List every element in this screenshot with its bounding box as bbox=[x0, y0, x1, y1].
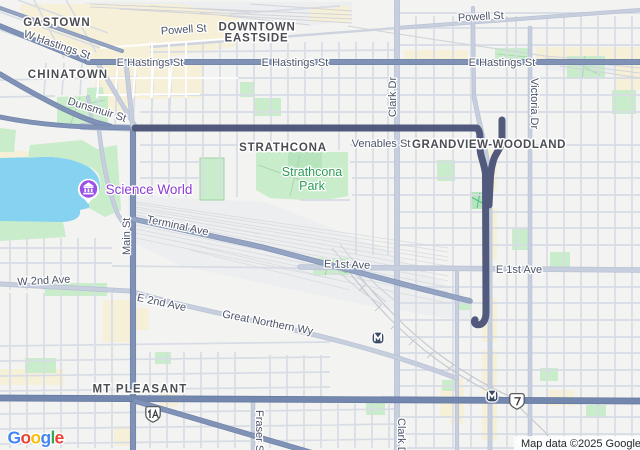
svg-text:STRATHCONA: STRATHCONA bbox=[239, 142, 327, 154]
svg-text:GASTOWN: GASTOWN bbox=[23, 17, 91, 29]
svg-text:Park: Park bbox=[299, 179, 325, 193]
svg-text:Map data ©2025 Google: Map data ©2025 Google bbox=[521, 438, 640, 450]
svg-text:EASTSIDE: EASTSIDE bbox=[225, 33, 289, 45]
svg-text:Clark Dr: Clark Dr bbox=[387, 77, 399, 118]
svg-text:Science World: Science World bbox=[106, 182, 193, 197]
svg-text:Fraser St: Fraser St bbox=[253, 410, 265, 450]
svg-text:CHINATOWN: CHINATOWN bbox=[28, 69, 108, 81]
svg-text:E 1st Ave: E 1st Ave bbox=[324, 258, 371, 272]
svg-text:E Hastings St: E Hastings St bbox=[469, 57, 536, 69]
svg-text:E Hastings St: E Hastings St bbox=[262, 57, 329, 69]
svg-text:Powell St: Powell St bbox=[458, 10, 504, 24]
svg-text:Main St: Main St bbox=[121, 218, 133, 255]
svg-text:MT PLEASANT: MT PLEASANT bbox=[93, 384, 188, 396]
svg-text:GRANDVIEW-WOODLAND: GRANDVIEW-WOODLAND bbox=[412, 139, 566, 151]
svg-text:Victoria Dr: Victoria Dr bbox=[528, 78, 540, 129]
svg-text:G: G bbox=[8, 428, 22, 448]
svg-text:E Hastings St: E Hastings St bbox=[117, 57, 184, 69]
svg-text:E 1st Ave: E 1st Ave bbox=[496, 264, 542, 276]
svg-text:Venables St: Venables St bbox=[352, 138, 411, 150]
svg-text:Clark D: Clark D bbox=[395, 418, 407, 450]
svg-text:Strathcona: Strathcona bbox=[282, 165, 343, 179]
svg-text:e: e bbox=[55, 428, 65, 448]
